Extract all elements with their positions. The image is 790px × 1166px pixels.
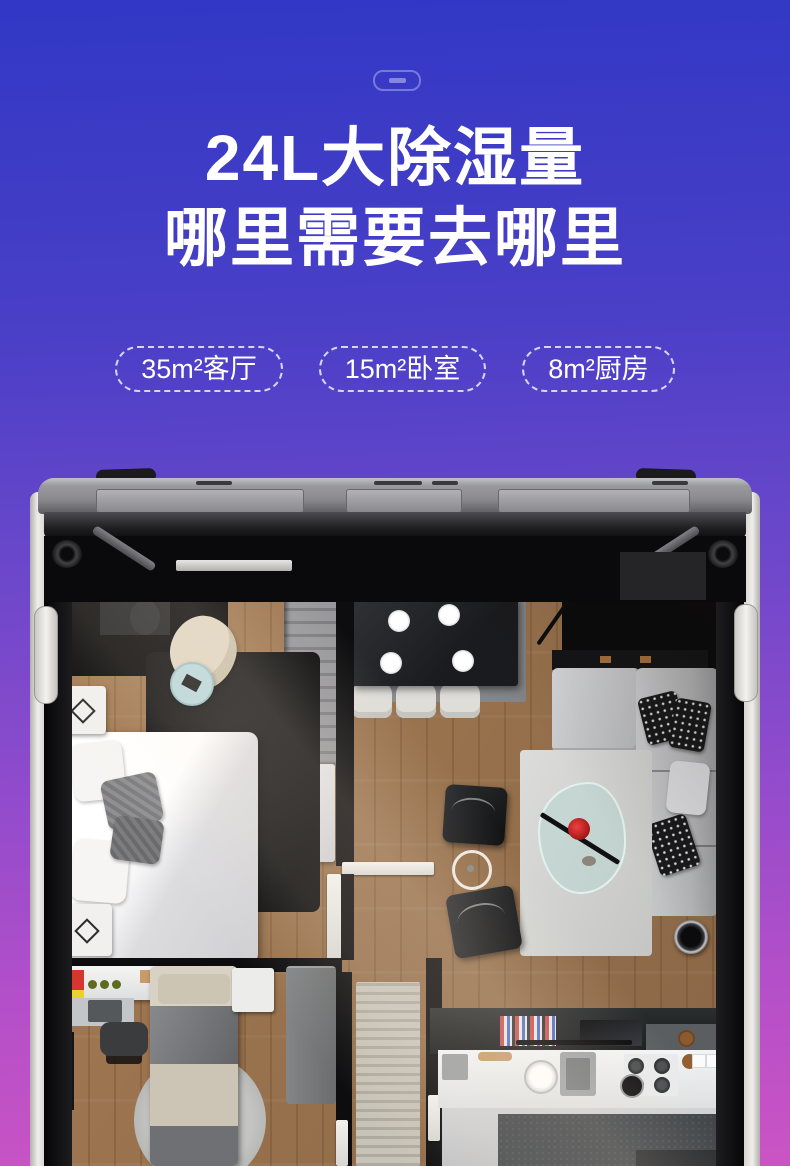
wire-lamp xyxy=(74,918,99,943)
cooking-pot xyxy=(620,1074,644,1098)
bedside-table xyxy=(232,968,274,1012)
leather-ottoman xyxy=(445,885,523,960)
console-item xyxy=(600,656,611,663)
top-bar-underlip xyxy=(44,512,746,538)
kitchen-sink xyxy=(560,1052,596,1096)
room-size-badges: 35m²客厅 15m²卧室 8m²厨房 xyxy=(0,346,790,392)
burner xyxy=(628,1058,644,1074)
dining-chair xyxy=(396,682,436,718)
dehumidifier-promo-page: 24L大除湿量 哪里需要去哪里 35m²客厅 15m²卧室 8m²厨房 xyxy=(0,0,790,1166)
office-chair xyxy=(100,1022,148,1056)
plate xyxy=(388,610,410,632)
top-bar-vent-slot xyxy=(374,481,422,485)
headline: 24L大除湿量 哪里需要去哪里 xyxy=(0,118,790,278)
console-item xyxy=(640,656,651,663)
coffee-cup xyxy=(678,1030,695,1047)
frame-handle-right xyxy=(734,604,758,702)
top-bar-vent-slot xyxy=(432,481,458,485)
hallway-runner-rug xyxy=(356,982,420,1166)
sofa-chaise xyxy=(552,668,640,752)
leather-ottoman xyxy=(442,784,508,846)
top-bar-panel xyxy=(346,489,462,513)
bed-blanket-beige xyxy=(150,1064,238,1128)
green-jar xyxy=(100,980,109,989)
sofa-back-console xyxy=(552,650,708,670)
curtain-rail xyxy=(176,560,292,571)
kitchen-island-mat xyxy=(498,1114,720,1166)
cutting-board xyxy=(478,1052,512,1061)
door-frame xyxy=(327,874,341,960)
dining-chair xyxy=(440,682,480,718)
headline-line-1: 24L大除湿量 xyxy=(0,118,790,198)
knit-cushion xyxy=(109,815,165,866)
floor-ring-tray xyxy=(452,850,492,890)
dining-chair xyxy=(352,682,392,718)
headline-line-2: 哪里需要去哪里 xyxy=(0,198,790,278)
door-frame xyxy=(342,862,434,875)
single-bed xyxy=(150,966,238,1166)
badge-living-room: 35m²客厅 xyxy=(115,346,283,392)
closet-chair xyxy=(130,600,160,635)
magazine xyxy=(181,674,202,693)
round-side-table xyxy=(170,662,214,706)
glass-coffee-table xyxy=(538,782,626,894)
top-bar-panel xyxy=(96,489,304,513)
port-bar xyxy=(389,78,406,83)
badge-kitchen: 8m²厨房 xyxy=(522,346,675,392)
bed-pillow xyxy=(158,974,230,1004)
machine-wheel-right xyxy=(708,540,738,568)
bed-footer xyxy=(150,1126,238,1166)
wall xyxy=(341,874,354,960)
machine-right-panel xyxy=(620,552,706,600)
counter-appliance xyxy=(442,1054,468,1080)
island-dark-step xyxy=(636,1150,720,1166)
gray-bench xyxy=(286,966,336,1104)
charging-port-icon xyxy=(373,70,421,91)
green-jar xyxy=(88,980,97,989)
red-flower xyxy=(568,818,590,840)
top-bar-vent-slot xyxy=(196,481,232,485)
decor-stone xyxy=(582,856,596,866)
wall xyxy=(336,556,354,866)
top-bar-panel xyxy=(498,489,690,513)
wire-lamp xyxy=(70,698,95,723)
dining-table xyxy=(352,596,518,686)
ring-center xyxy=(467,865,474,872)
round-speaker xyxy=(674,920,708,954)
white-tile xyxy=(692,1054,706,1068)
plate xyxy=(380,652,402,674)
burner xyxy=(654,1058,670,1074)
plate xyxy=(438,604,460,626)
green-jar xyxy=(112,980,121,989)
light-cushion xyxy=(665,760,710,816)
bed-blanket-dark xyxy=(150,1006,238,1066)
sink-bowl xyxy=(566,1058,590,1090)
round-basin xyxy=(524,1060,558,1094)
yellow-tag xyxy=(72,990,84,998)
machine-wheel-left xyxy=(52,540,82,568)
red-box xyxy=(70,970,84,992)
badge-bedroom: 15m²卧室 xyxy=(319,346,487,392)
burner xyxy=(654,1077,670,1093)
laptop xyxy=(88,1000,122,1022)
soundbar xyxy=(516,1040,632,1045)
door-frame xyxy=(336,1120,348,1166)
frame-handle-left xyxy=(34,606,58,704)
top-bar-vent-slot xyxy=(652,481,688,485)
plate xyxy=(452,650,474,672)
